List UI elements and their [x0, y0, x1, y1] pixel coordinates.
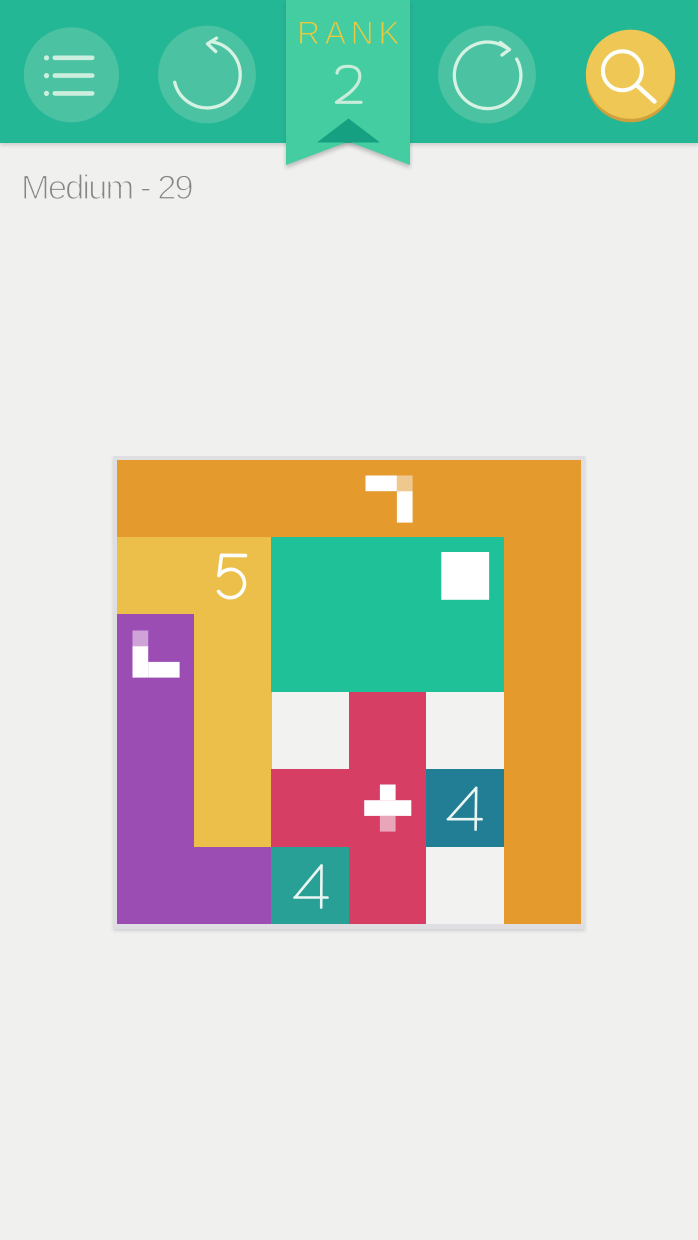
svg-text:RANK: RANK — [297, 15, 404, 51]
